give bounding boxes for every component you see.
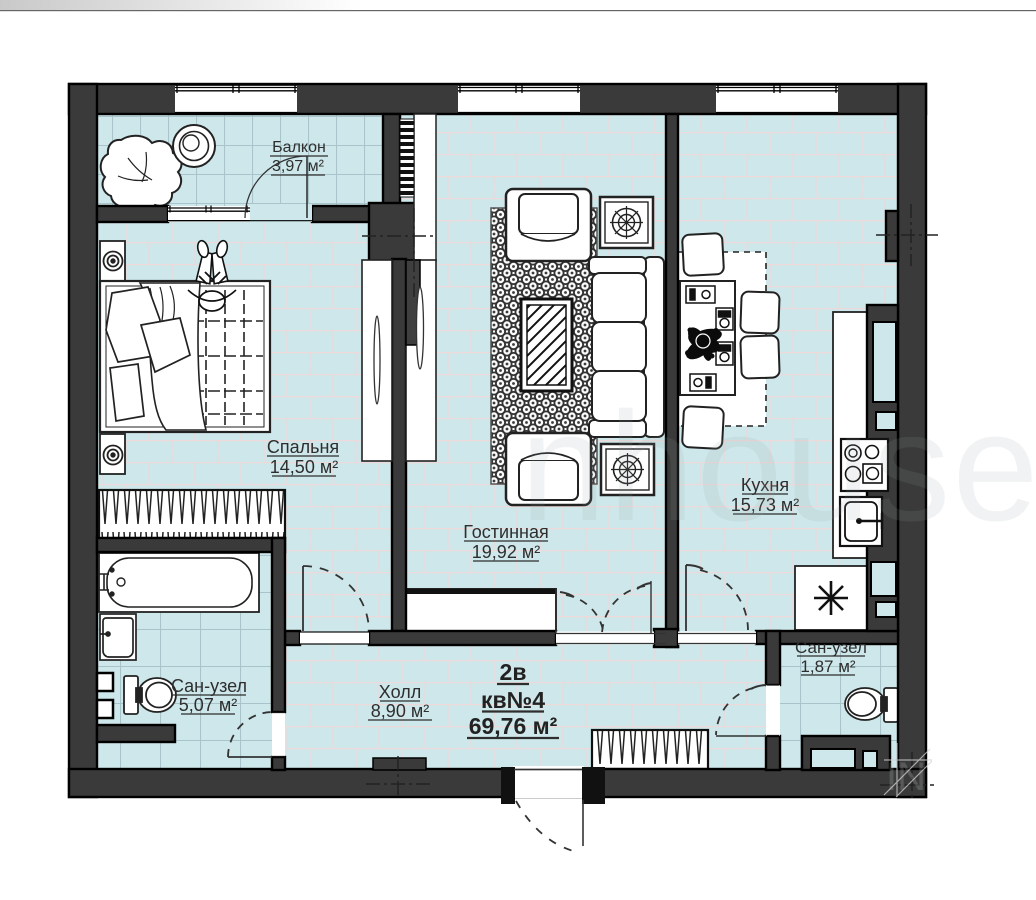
- svg-text:14,50 м²: 14,50 м²: [270, 457, 338, 477]
- svg-text:кв№4: кв№4: [481, 687, 545, 713]
- svg-text:1,87 м²: 1,87 м²: [800, 657, 855, 676]
- svg-text:Спальня: Спальня: [267, 437, 339, 457]
- svg-text:69,76 м²: 69,76 м²: [469, 713, 558, 739]
- svg-text:Холл: Холл: [379, 682, 421, 702]
- svg-text:8,90 м²: 8,90 м²: [371, 701, 429, 721]
- svg-text:5,07 м²: 5,07 м²: [179, 695, 237, 715]
- svg-text:IN: IN: [886, 755, 926, 799]
- svg-text:2в: 2в: [500, 659, 527, 685]
- svg-text:Сан-узел: Сан-узел: [171, 676, 247, 696]
- svg-text:3,97 м²: 3,97 м²: [272, 158, 325, 175]
- svg-text:Сан-узел: Сан-узел: [795, 638, 867, 657]
- svg-text:nhouse..: nhouse..: [520, 380, 1036, 553]
- svg-text:Балкон: Балкон: [272, 139, 326, 156]
